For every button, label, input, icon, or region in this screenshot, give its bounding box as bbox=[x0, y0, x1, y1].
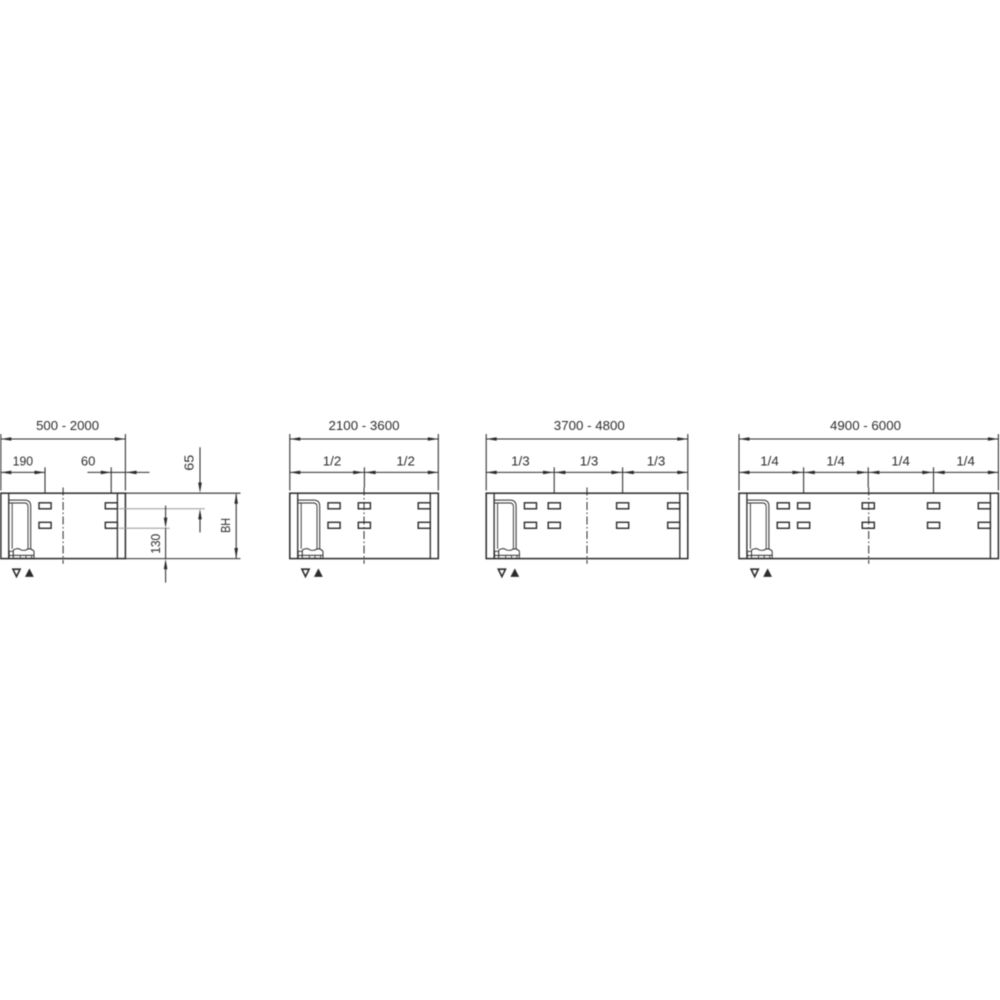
svg-text:3700 - 4800: 3700 - 4800 bbox=[554, 418, 625, 433]
svg-text:1/3: 1/3 bbox=[511, 454, 530, 469]
svg-text:60: 60 bbox=[81, 454, 96, 469]
svg-text:1/4: 1/4 bbox=[891, 454, 910, 469]
svg-text:1/3: 1/3 bbox=[580, 454, 599, 469]
svg-text:1/2: 1/2 bbox=[396, 454, 415, 469]
svg-text:1/4: 1/4 bbox=[826, 454, 845, 469]
svg-text:190: 190 bbox=[13, 454, 34, 469]
svg-text:1/2: 1/2 bbox=[323, 454, 342, 469]
svg-text:500 - 2000: 500 - 2000 bbox=[36, 418, 99, 433]
svg-text:1/4: 1/4 bbox=[760, 454, 779, 469]
svg-text:130: 130 bbox=[148, 534, 163, 554]
svg-text:4900 - 6000: 4900 - 6000 bbox=[830, 418, 901, 433]
svg-text:1/3: 1/3 bbox=[647, 454, 666, 469]
svg-text:BH: BH bbox=[218, 518, 233, 533]
svg-text:65: 65 bbox=[182, 455, 197, 471]
svg-text:1/4: 1/4 bbox=[956, 454, 975, 469]
svg-text:2100 - 3600: 2100 - 3600 bbox=[329, 418, 400, 433]
